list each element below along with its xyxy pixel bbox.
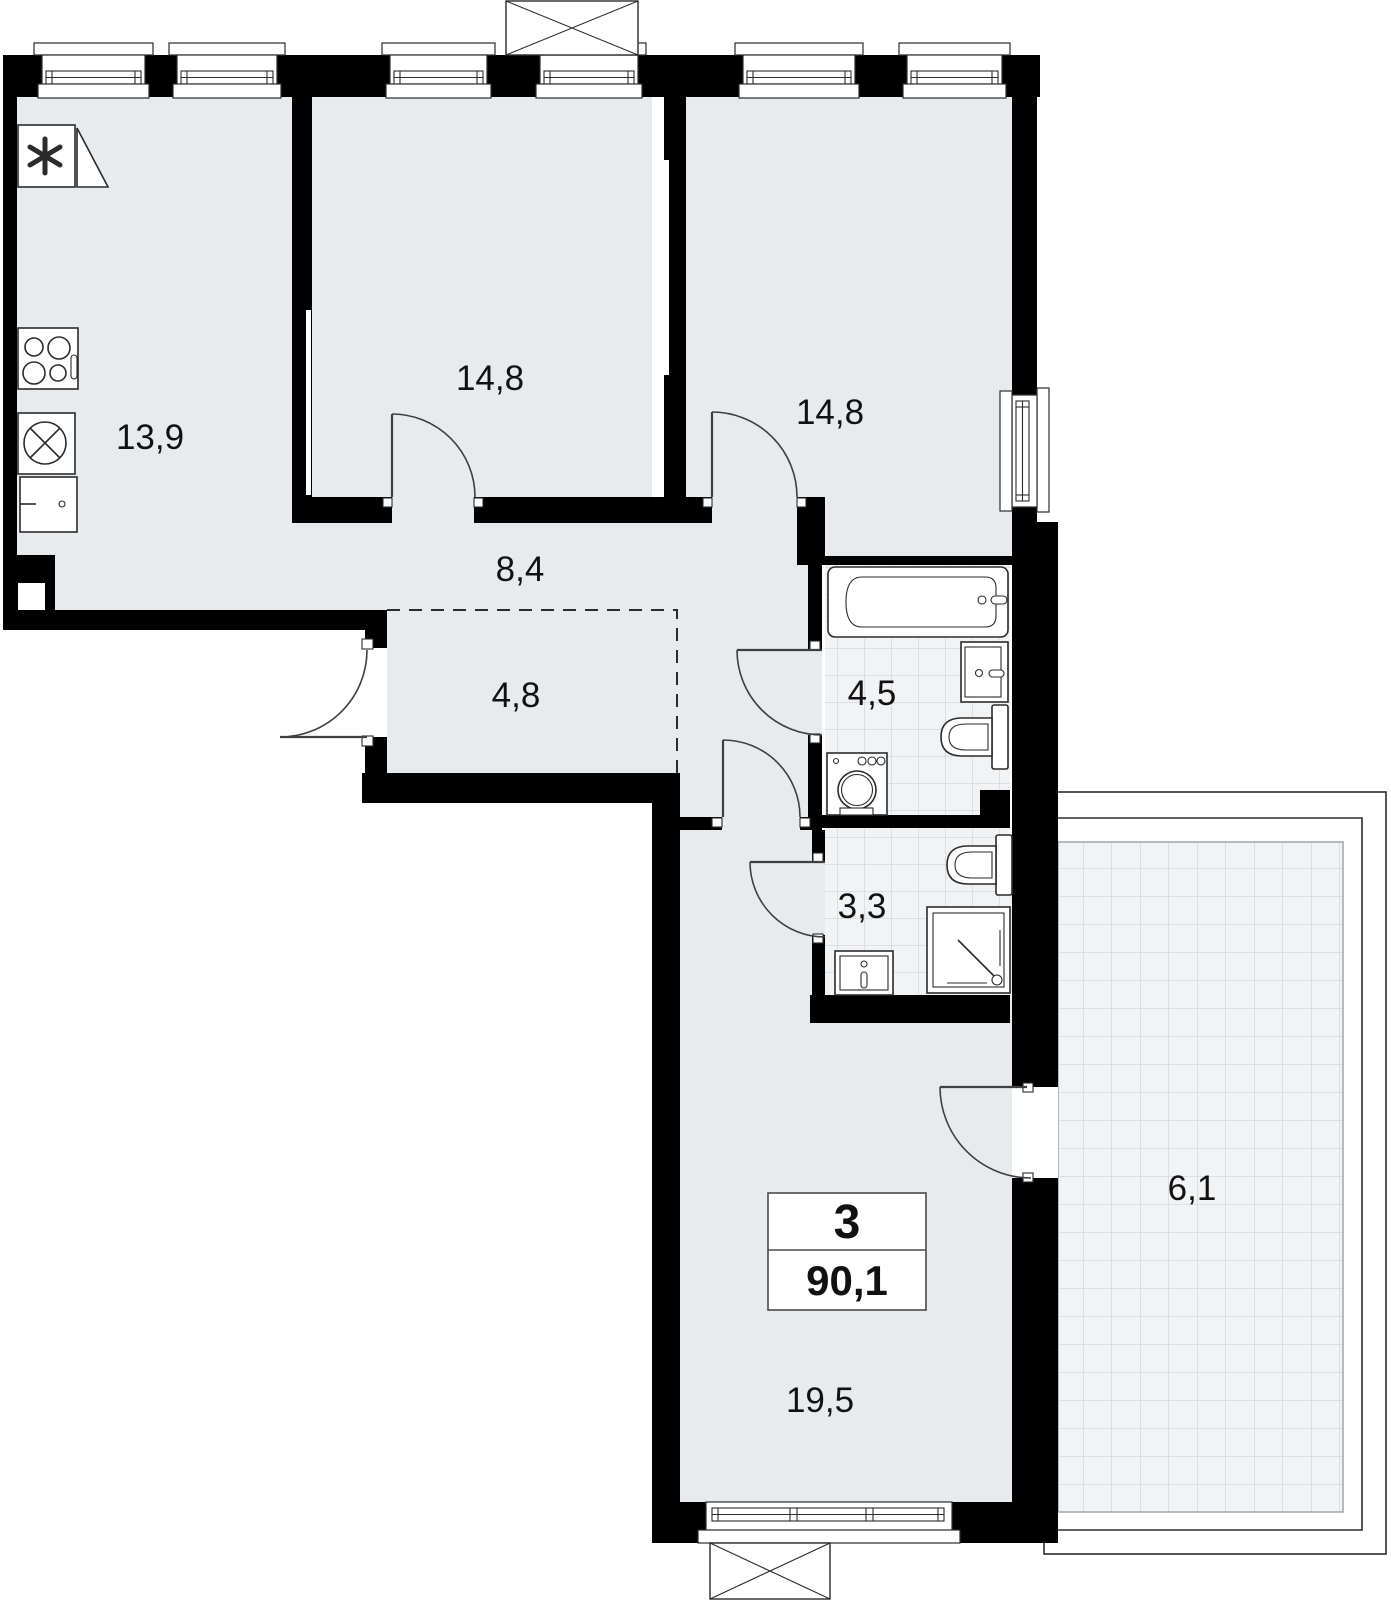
wall-bath-wc-block (980, 790, 1010, 828)
total-area-label: 90,1 (806, 1257, 888, 1304)
wall-hall-bottom (3, 610, 387, 630)
wardrobe-label: 4,8 (492, 676, 541, 715)
wall-wardrobe-bottom (362, 773, 680, 803)
balcony-label: 6,1 (1168, 1169, 1217, 1208)
window-kitchen-2 (169, 43, 285, 98)
kitchen-sink-icon (18, 413, 75, 474)
wall-left-notch (18, 583, 45, 610)
hallway-label: 8,4 (496, 550, 545, 589)
wall-living-left (652, 773, 680, 1532)
rooms-count-label: 3 (834, 1196, 861, 1249)
bedroom1-label: 14,8 (456, 359, 524, 398)
stove-icon (18, 328, 78, 389)
window-living-room (698, 1502, 960, 1543)
kitchen-label: 13,9 (116, 418, 184, 457)
window-bedroom2-side (1000, 388, 1049, 512)
floor-plan: 3 90,1 13,9 14,8 14,8 8,4 4,8 4,5 3,3 19… (0, 0, 1391, 1600)
window-bedroom2-2 (899, 43, 1010, 98)
living-room-label: 19,5 (786, 1381, 854, 1420)
wall-left (3, 55, 17, 575)
wall-wc-bottom (810, 995, 1010, 1023)
wall-bathroom-left-a (808, 565, 822, 650)
wall-bath-wc-divider (808, 815, 1010, 828)
hallway-floor (17, 523, 808, 610)
bedroom1-floor (312, 97, 652, 497)
bathtub-icon (828, 567, 1008, 637)
shaft-box-top (506, 1, 638, 55)
apartment-info-box: 3 90,1 (768, 1193, 926, 1310)
window-kitchen-1 (34, 43, 153, 98)
window-bedroom1-1 (382, 43, 495, 98)
washing-machine-icon (827, 753, 887, 815)
wc-label: 3,3 (838, 887, 887, 926)
bedroom2-label: 14,8 (796, 393, 864, 432)
bedroom2-floor (686, 97, 1012, 556)
wall-right-main (1012, 522, 1058, 1087)
shower-icon (927, 907, 1010, 993)
wall-bottom-right-block (950, 1502, 1058, 1543)
entrance-door (280, 639, 387, 746)
wall-right-upper (1012, 97, 1037, 395)
dishwasher-icon (20, 477, 77, 532)
bathroom-label: 4,5 (848, 674, 897, 713)
wall-kitchen-partition-slit (306, 310, 311, 495)
shaft-box-bottom (710, 1543, 830, 1599)
wall-top (3, 55, 1040, 97)
floor-plan-page: 3 90,1 13,9 14,8 14,8 8,4 4,8 4,5 3,3 19… (0, 0, 1391, 1600)
wc-sink-icon (835, 951, 893, 995)
bathroom-sink-icon (961, 642, 1008, 702)
window-bedroom2-1 (735, 43, 863, 98)
wall-bedroom-partition-slit (664, 160, 669, 375)
wall-right-lower (1012, 1178, 1058, 1532)
corridor-upper-floor (677, 610, 812, 847)
wall-bathroom-top (825, 556, 1012, 565)
